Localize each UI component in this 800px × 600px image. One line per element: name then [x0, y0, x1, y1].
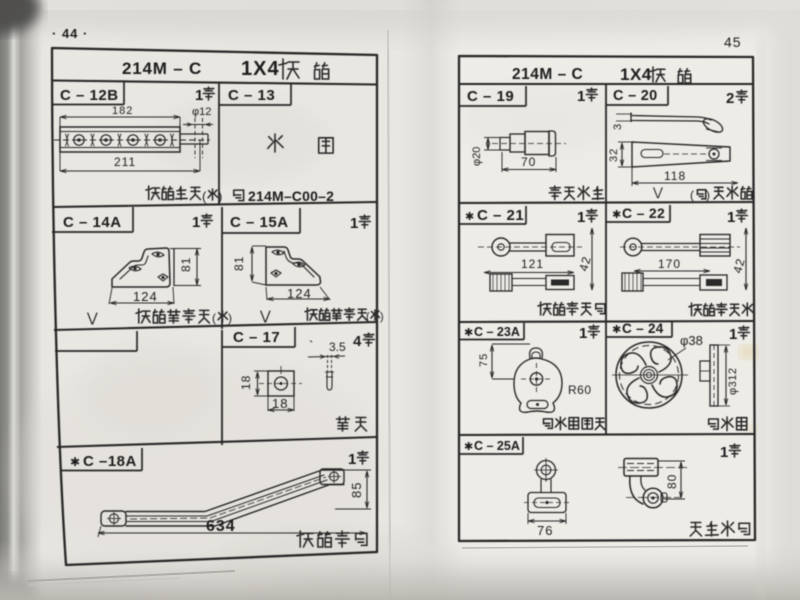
svg-text:214M–C00–2: 214M–C00–2 — [248, 188, 334, 204]
svg-text:182: 182 — [112, 105, 133, 117]
svg-text:✱: ✱ — [612, 209, 621, 221]
svg-text:1: 1 — [195, 87, 203, 104]
svg-text:C – 19: C – 19 — [467, 88, 514, 105]
svg-text:3.5: 3.5 — [329, 340, 346, 354]
svg-text:18: 18 — [272, 396, 288, 411]
svg-text:76: 76 — [537, 523, 553, 538]
svg-text:1: 1 — [577, 209, 585, 226]
svg-text:C – 25A: C – 25A — [474, 439, 520, 453]
svg-text:211: 211 — [114, 155, 136, 169]
svg-text:1: 1 — [577, 88, 585, 105]
svg-text:1: 1 — [192, 214, 200, 231]
svg-text:φ20: φ20 — [471, 147, 483, 166]
svg-text:634: 634 — [206, 518, 236, 535]
svg-text:3: 3 — [612, 124, 624, 130]
svg-text:R60: R60 — [568, 383, 592, 397]
svg-text:121: 121 — [521, 257, 544, 271]
svg-text:): ) — [218, 189, 222, 204]
svg-text:1: 1 — [720, 444, 728, 461]
svg-text:C – 23A: C – 23A — [474, 325, 520, 339]
svg-text:214M – C: 214M – C — [122, 59, 202, 78]
svg-text:✱: ✱ — [464, 441, 473, 453]
svg-text:214M – C: 214M – C — [512, 66, 583, 83]
svg-text:(: ( — [690, 188, 694, 202]
svg-text:φ38: φ38 — [680, 333, 703, 348]
svg-text:32: 32 — [608, 148, 620, 162]
svg-text:18: 18 — [239, 375, 253, 390]
svg-text:2: 2 — [726, 90, 734, 107]
svg-text:1: 1 — [579, 325, 587, 342]
svg-text:): ) — [228, 311, 232, 325]
svg-text:φ312: φ312 — [727, 368, 739, 396]
svg-text:C – 24: C – 24 — [622, 321, 664, 336]
svg-text:✱: ✱ — [465, 211, 474, 223]
svg-text:1: 1 — [348, 451, 356, 468]
svg-text:⋁: ⋁ — [259, 308, 271, 323]
svg-text:85: 85 — [349, 482, 364, 498]
svg-text:70: 70 — [521, 155, 536, 169]
svg-text:✱: ✱ — [70, 455, 80, 469]
svg-text:C – 20: C – 20 — [613, 88, 658, 104]
svg-text:φ12: φ12 — [192, 106, 211, 118]
svg-text:1X4: 1X4 — [620, 65, 652, 84]
svg-text:C – 21: C – 21 — [477, 207, 524, 224]
svg-text:124: 124 — [287, 286, 312, 301]
svg-text:C – 22: C – 22 — [622, 205, 665, 221]
svg-text:124: 124 — [133, 289, 158, 304]
svg-text:C – 14A: C – 14A — [63, 214, 122, 231]
svg-text:⋁: ⋁ — [86, 310, 98, 325]
svg-text:(: ( — [366, 311, 370, 323]
svg-text:1X4: 1X4 — [241, 58, 280, 80]
svg-text:C – 13: C – 13 — [228, 87, 275, 104]
svg-text:118: 118 — [664, 169, 686, 183]
svg-text:81: 81 — [232, 256, 246, 271]
svg-text:(: ( — [212, 311, 216, 325]
svg-text:170: 170 — [658, 257, 681, 271]
svg-text:81: 81 — [179, 257, 193, 272]
svg-text:C – 17: C – 17 — [233, 329, 280, 346]
svg-text:): ) — [706, 188, 710, 202]
svg-text:): ) — [380, 311, 384, 323]
svg-text:1: 1 — [350, 215, 358, 232]
svg-text:C – 15A: C – 15A — [230, 214, 289, 231]
svg-text:4: 4 — [353, 333, 362, 350]
svg-text:✱: ✱ — [612, 324, 621, 336]
svg-text:`: ` — [309, 338, 313, 353]
svg-text:75: 75 — [478, 353, 490, 367]
svg-text:✱: ✱ — [464, 327, 473, 339]
svg-text:1: 1 — [729, 326, 737, 343]
svg-text:1: 1 — [727, 209, 735, 226]
svg-text:(: ( — [202, 189, 207, 204]
svg-text:45: 45 — [724, 34, 742, 50]
svg-text:⋁: ⋁ — [652, 185, 663, 199]
svg-text:80: 80 — [665, 474, 679, 489]
svg-text:· 44 ·: · 44 · — [52, 26, 88, 41]
svg-text:C – 12B: C – 12B — [60, 87, 119, 104]
svg-text:C –18A: C –18A — [83, 453, 137, 470]
